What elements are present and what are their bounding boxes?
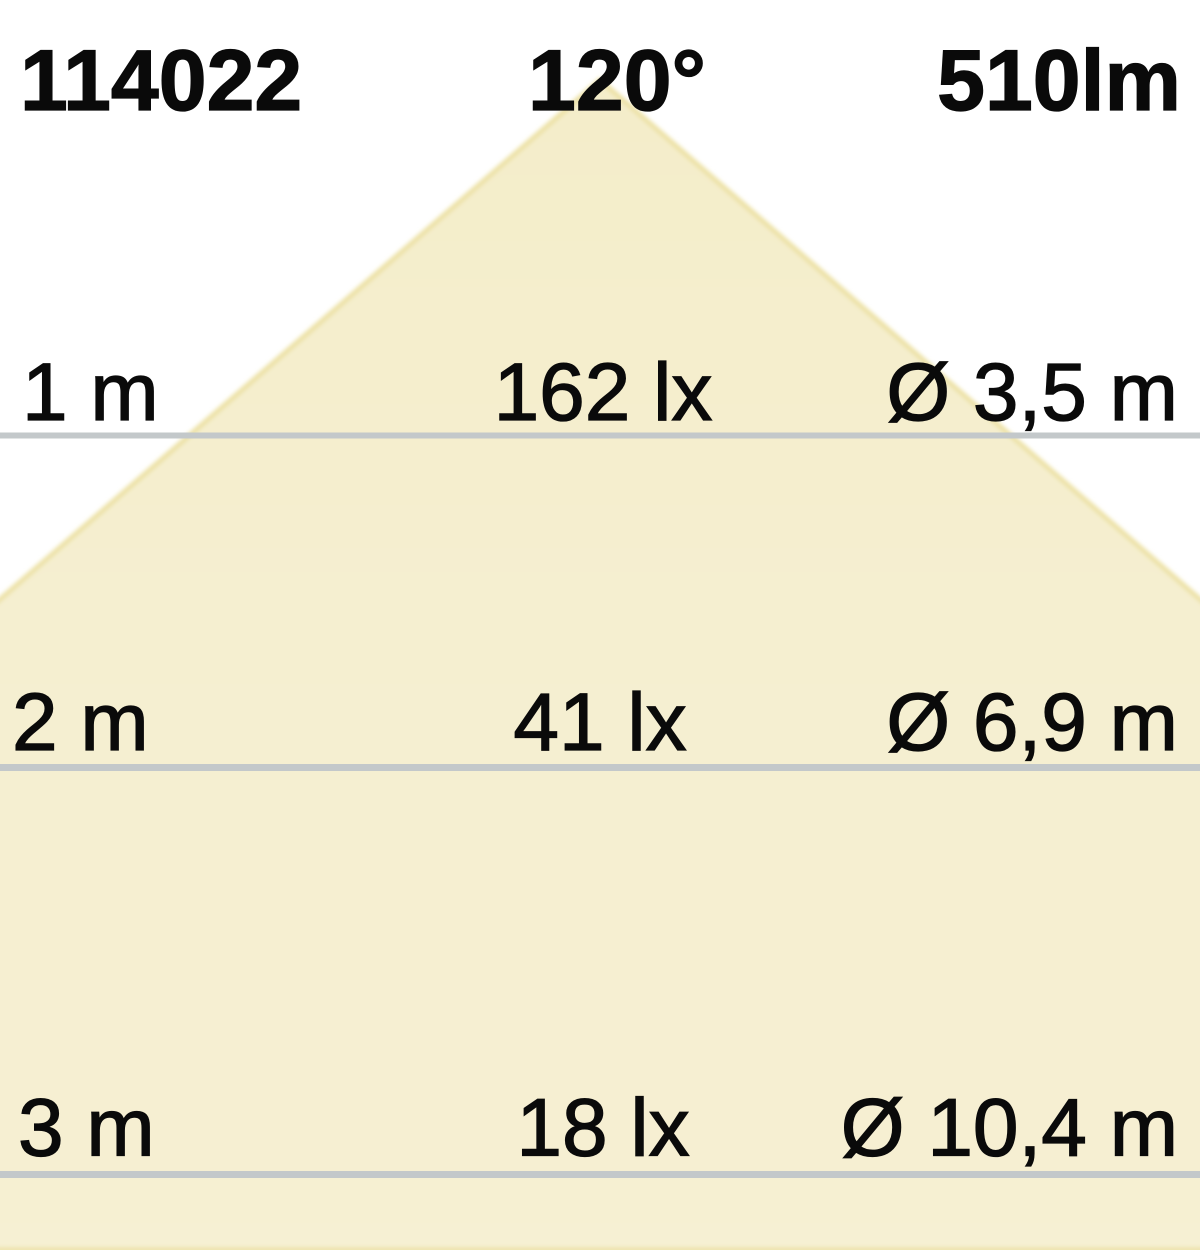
svg-text:162 lx: 162 lx [494, 347, 713, 438]
svg-text:Ø 10,4 m: Ø 10,4 m [841, 1083, 1178, 1174]
svg-text:114022: 114022 [20, 33, 302, 129]
svg-text:Ø 6,9 m: Ø 6,9 m [886, 677, 1178, 768]
svg-text:1 m: 1 m [22, 347, 159, 438]
svg-text:18 lx: 18 lx [516, 1083, 689, 1174]
svg-text:510lm: 510lm [937, 33, 1181, 129]
svg-text:2 m: 2 m [12, 677, 149, 768]
svg-text:3 m: 3 m [18, 1083, 155, 1174]
svg-text:41 lx: 41 lx [513, 677, 686, 768]
svg-text:120°: 120° [528, 33, 706, 129]
svg-text:Ø 3,5 m: Ø 3,5 m [886, 347, 1178, 438]
